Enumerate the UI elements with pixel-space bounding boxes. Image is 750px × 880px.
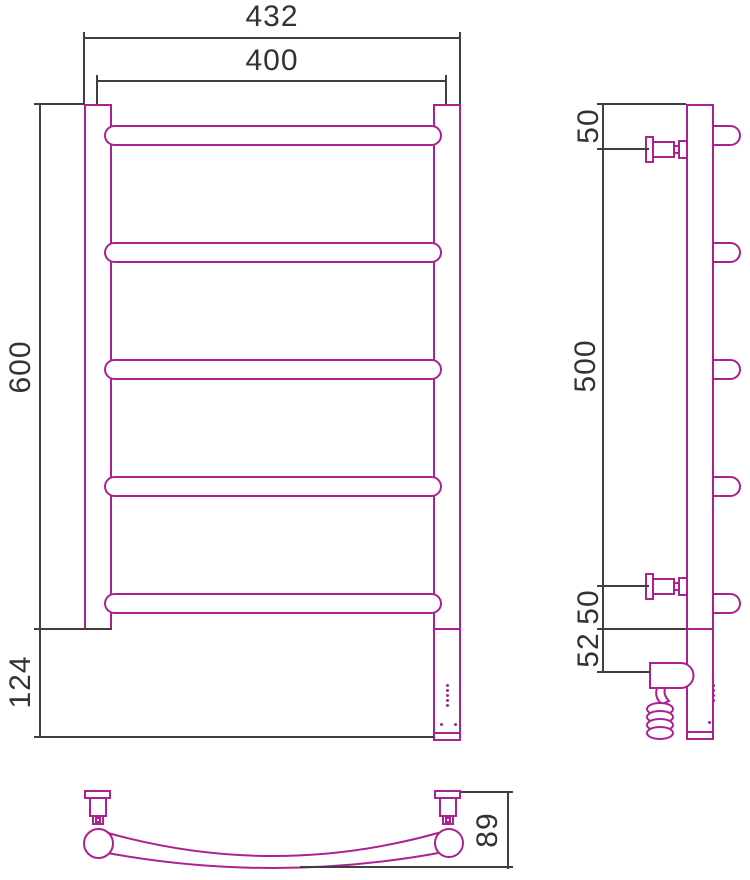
top-bracket-pin bbox=[95, 817, 101, 823]
rung-stub bbox=[712, 476, 741, 497]
ext-line bbox=[96, 75, 98, 104]
dim-line-600 bbox=[39, 104, 41, 630]
indicator-dots bbox=[712, 694, 715, 697]
dim-label-axis-width: 400 bbox=[212, 46, 332, 76]
indicator-dots bbox=[712, 684, 715, 687]
front-right-tube-heater-housing bbox=[433, 628, 461, 734]
wall-bracket-body bbox=[652, 141, 675, 158]
cable-coil-loop bbox=[647, 727, 673, 739]
tube-end-circle bbox=[83, 828, 114, 859]
front-right-tube-foot bbox=[433, 732, 461, 741]
side-tube bbox=[686, 104, 714, 630]
dim-label-lower-height: 124 bbox=[4, 642, 38, 722]
top-bracket-body bbox=[89, 797, 107, 817]
dim-label-rail-depth: 89 bbox=[471, 790, 505, 870]
indicator-dots bbox=[446, 694, 449, 697]
rung-stub bbox=[712, 125, 741, 146]
towel-rail-technical-drawing: 432 400 600 124 50 500 50 52 89 bbox=[0, 0, 750, 880]
heater-and-power-cord bbox=[628, 655, 718, 750]
rung-stub bbox=[712, 359, 741, 380]
dim-label-height: 600 bbox=[4, 327, 38, 407]
dim-label-bracket-span: 500 bbox=[569, 326, 603, 406]
heater-cartridge bbox=[650, 663, 694, 688]
top-bracket-body bbox=[439, 797, 457, 817]
ext-line bbox=[445, 75, 447, 104]
ext-line bbox=[34, 628, 112, 630]
curved-rail-top-view bbox=[60, 818, 500, 880]
indicator-dots bbox=[440, 723, 443, 726]
wall-bracket-cap bbox=[678, 577, 688, 596]
wall-bracket-body bbox=[652, 578, 675, 595]
ext-line bbox=[34, 103, 84, 105]
indicator-dots bbox=[454, 723, 457, 726]
ext-line bbox=[597, 103, 686, 105]
ext-line bbox=[459, 32, 461, 104]
dim-line-432 bbox=[84, 37, 461, 39]
rung bbox=[104, 359, 442, 380]
ext-line bbox=[597, 628, 686, 630]
indicator-dots bbox=[712, 689, 715, 692]
dim-line-124 bbox=[39, 630, 41, 737]
tube-end-circle bbox=[434, 828, 464, 858]
rung bbox=[104, 242, 442, 263]
top-bracket-pin bbox=[445, 817, 451, 823]
rung-stub bbox=[712, 593, 741, 614]
wall-bracket-cap bbox=[678, 140, 688, 159]
dim-label-outer-width: 432 bbox=[212, 2, 332, 32]
dim-line-89 bbox=[507, 791, 509, 869]
indicator-dots bbox=[446, 684, 449, 687]
rung bbox=[104, 476, 442, 497]
indicator-dots bbox=[708, 721, 711, 724]
dim-line-400 bbox=[97, 80, 447, 82]
ext-line bbox=[34, 736, 434, 738]
dim-label-heater-offset: 52 bbox=[572, 610, 606, 690]
ext-line bbox=[83, 32, 85, 104]
indicator-dots bbox=[446, 689, 449, 692]
indicator-dots bbox=[446, 699, 449, 702]
cable-stem bbox=[656, 688, 669, 704]
rung-stub bbox=[712, 242, 741, 263]
dim-label-top-offset: 50 bbox=[572, 86, 606, 166]
rung bbox=[104, 125, 442, 146]
indicator-dots bbox=[446, 704, 449, 707]
rung bbox=[104, 593, 442, 614]
indicator-dots bbox=[712, 699, 715, 702]
